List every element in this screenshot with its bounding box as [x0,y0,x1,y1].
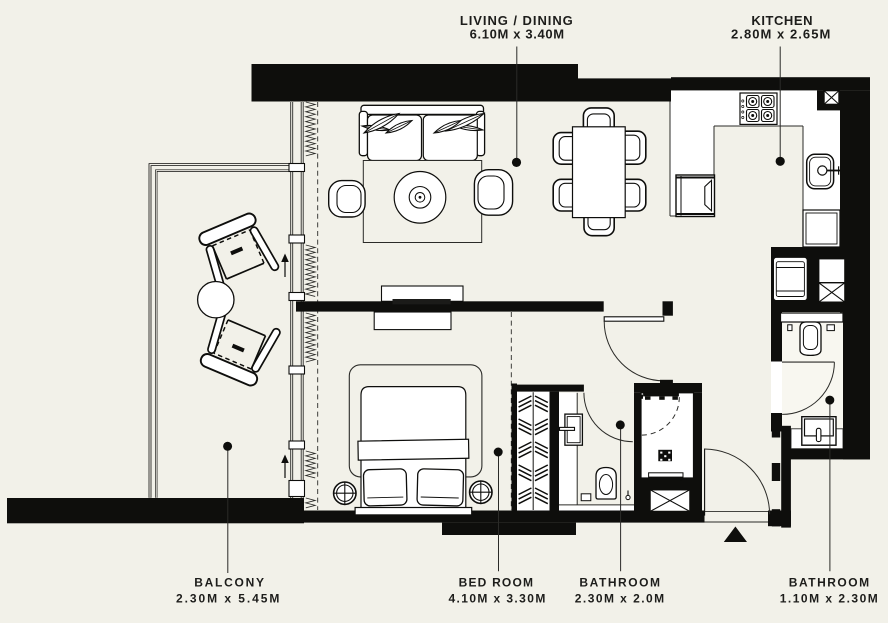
svg-text:6.10M x 3.40M: 6.10M x 3.40M [470,27,565,42]
svg-text:2.30M x 2.0M: 2.30M x 2.0M [575,591,666,605]
svg-text:2.30M x 5.45M: 2.30M x 5.45M [176,591,281,605]
svg-text:BED ROOM: BED ROOM [459,576,535,590]
svg-text:BALCONY: BALCONY [194,576,266,590]
svg-text:1.10M x 2.30M: 1.10M x 2.30M [780,591,880,605]
svg-text:4.10M x 3.30M: 4.10M x 3.30M [448,591,546,605]
svg-text:2.80M x 2.65M: 2.80M x 2.65M [731,27,831,42]
svg-text:BATHROOM: BATHROOM [789,576,871,590]
svg-text:BATHROOM: BATHROOM [579,576,661,590]
